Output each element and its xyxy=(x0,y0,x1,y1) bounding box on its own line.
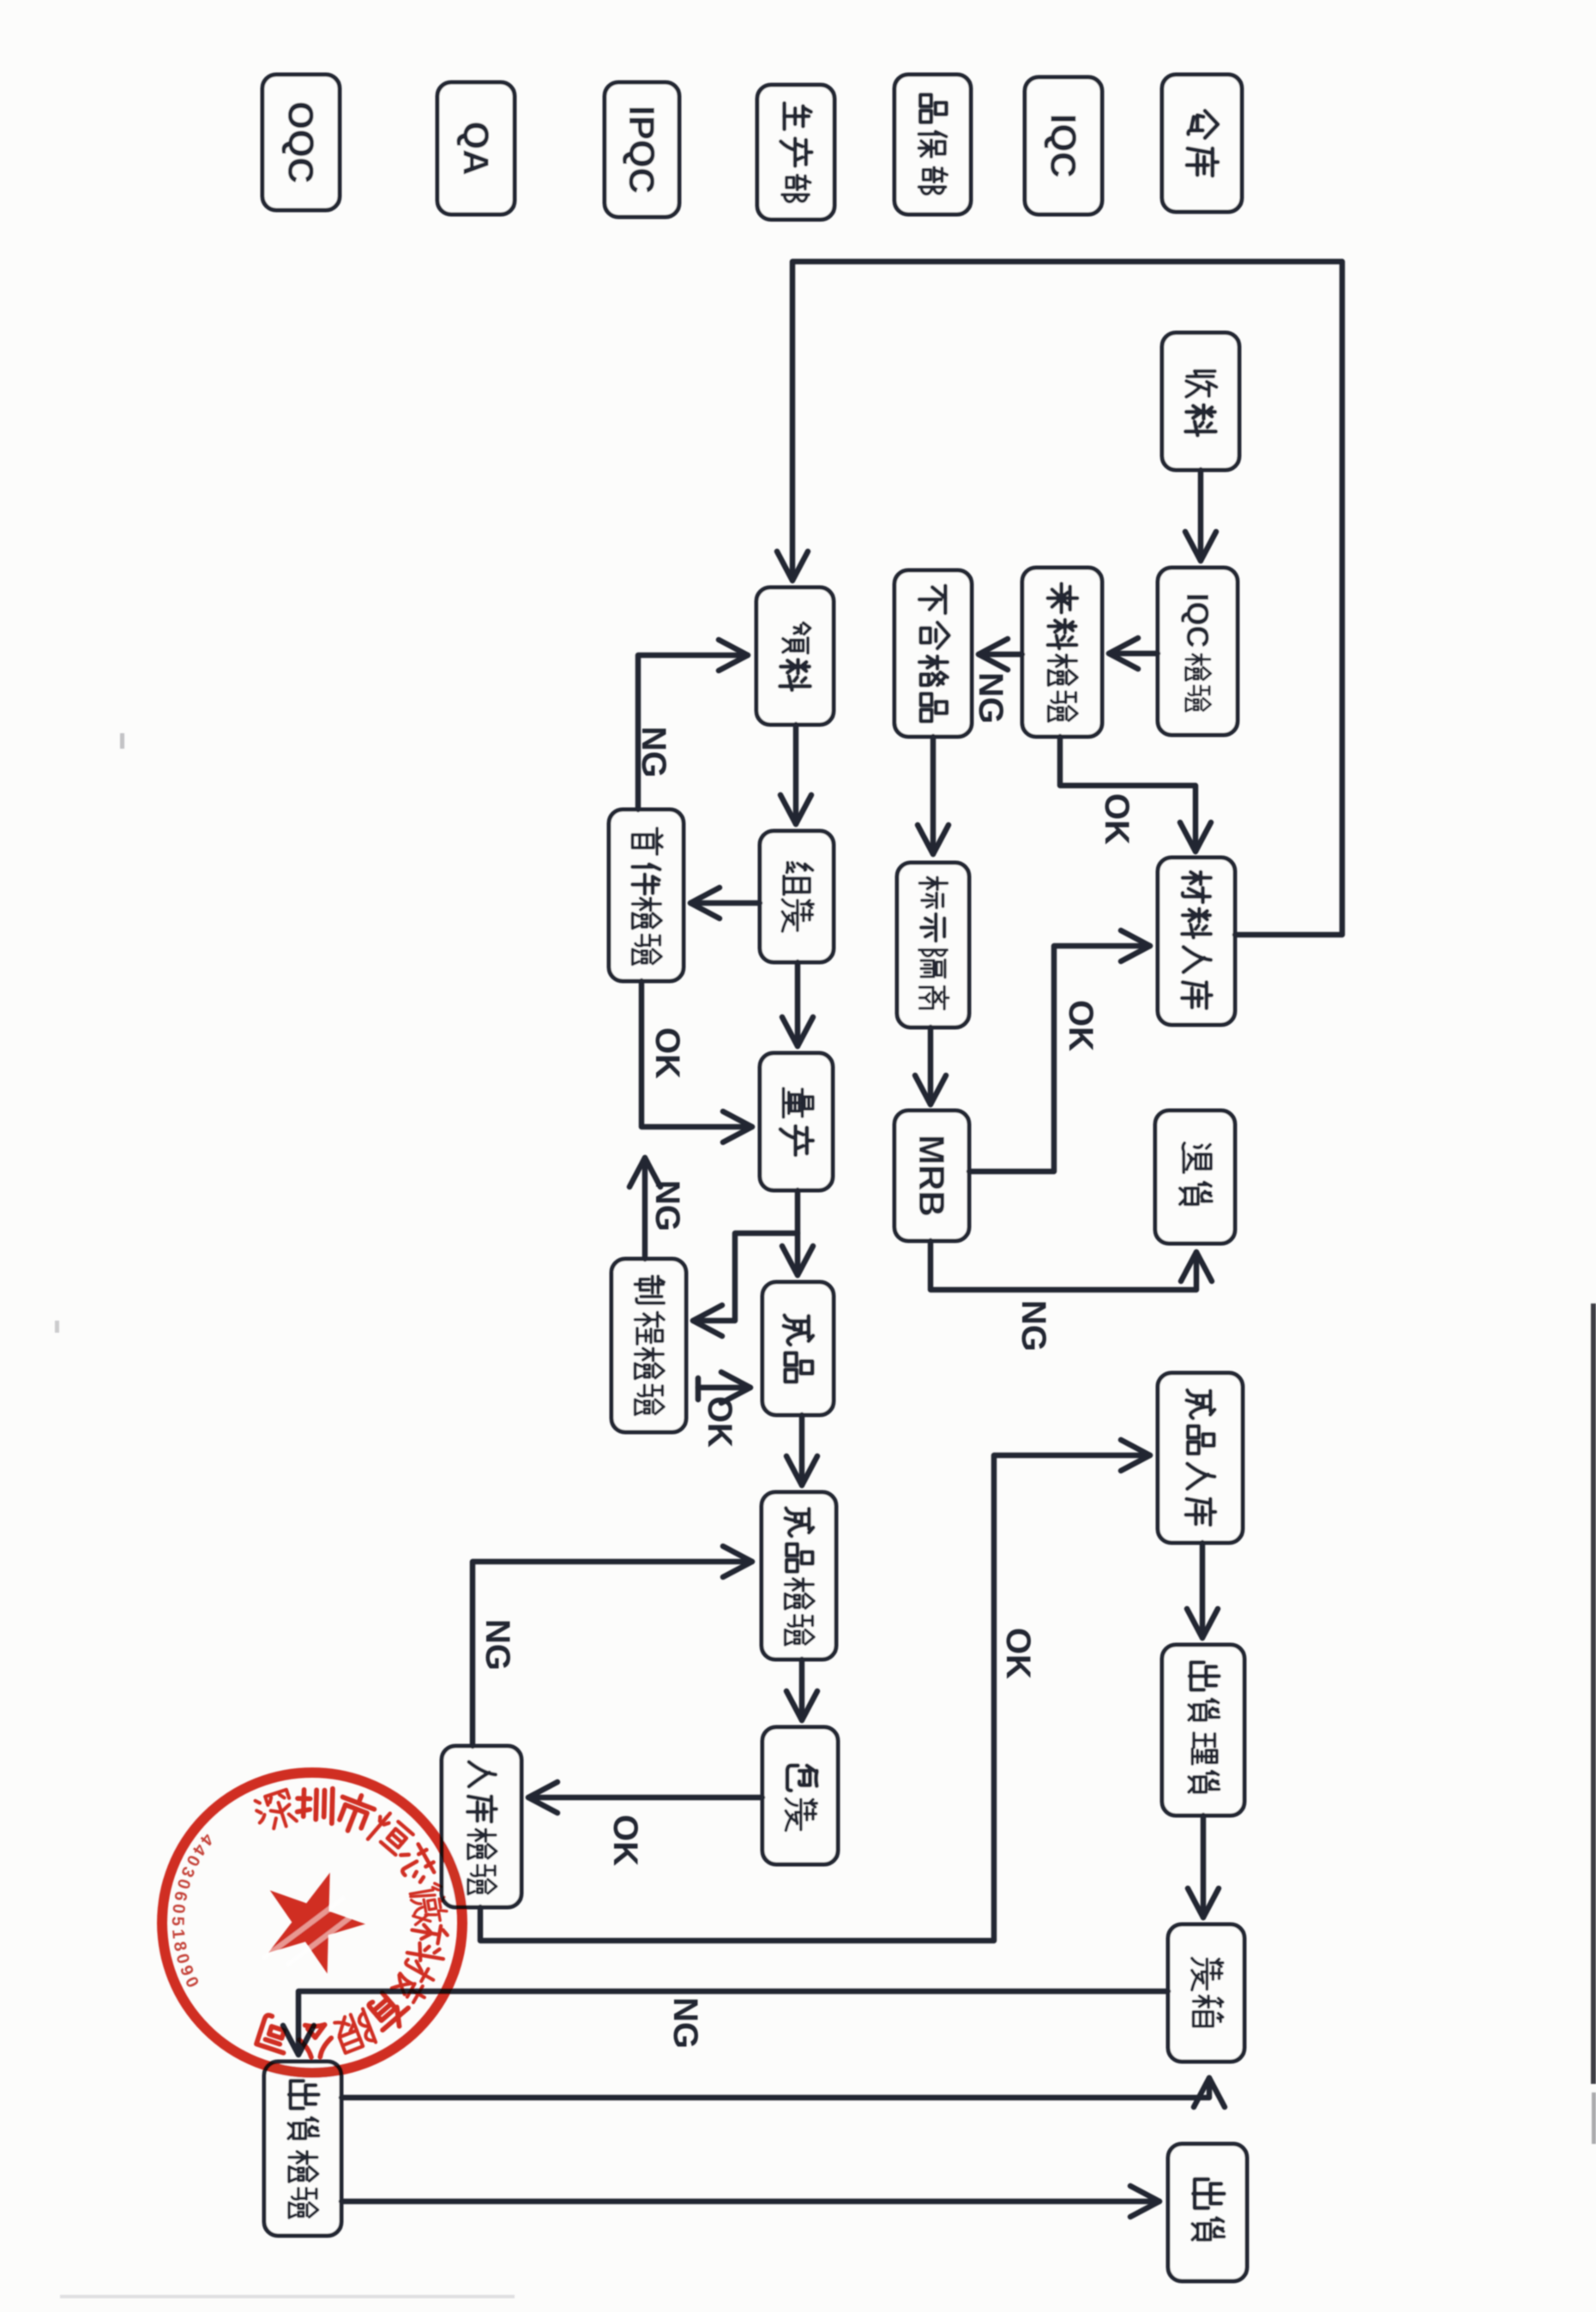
svg-text:OK: OK xyxy=(1098,793,1135,845)
svg-text:5: 5 xyxy=(168,1917,187,1926)
svg-text:IQC: IQC xyxy=(1044,114,1084,178)
svg-text:OK: OK xyxy=(606,1815,644,1866)
svg-text:1: 1 xyxy=(168,1929,188,1940)
svg-text:MRB: MRB xyxy=(912,1135,952,1217)
svg-text:NG: NG xyxy=(648,1180,686,1231)
svg-text:NG: NG xyxy=(1015,1300,1052,1352)
svg-text:OK: OK xyxy=(1062,1000,1099,1051)
svg-text:NG: NG xyxy=(666,1997,704,2049)
svg-text:QA: QA xyxy=(456,122,497,176)
svg-text:IPQC: IPQC xyxy=(622,105,662,194)
svg-text:OK: OK xyxy=(999,1628,1037,1679)
svg-text:OK: OK xyxy=(701,1396,738,1448)
svg-text:0: 0 xyxy=(168,1903,188,1914)
svg-text:NG: NG xyxy=(479,1619,516,1671)
svg-text:OQC: OQC xyxy=(281,101,322,184)
svg-text:NG: NG xyxy=(635,726,672,778)
svg-text:IQC: IQC xyxy=(1180,593,1215,647)
svg-text:NG: NG xyxy=(972,672,1009,724)
svg-text:OK: OK xyxy=(648,1027,686,1079)
